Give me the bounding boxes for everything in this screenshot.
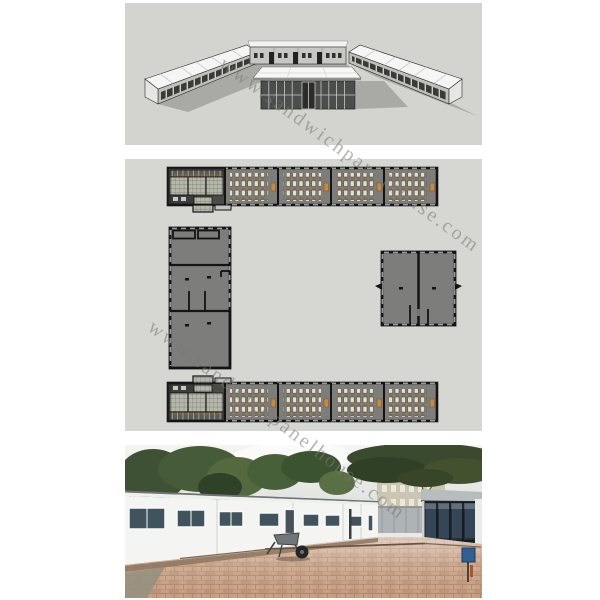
left-hall-building: [170, 228, 230, 368]
render-3d-panel: [125, 3, 482, 145]
top-classroom-strip: [168, 168, 437, 212]
bottom-classroom-strip: [168, 376, 437, 421]
floor-plan-graphic: [125, 159, 482, 431]
prefab-door: [285, 510, 295, 534]
floor-plan-panel: [125, 159, 482, 431]
gap-post: [349, 509, 352, 539]
back-classroom-row: [248, 41, 348, 64]
center-glass-hall: [253, 67, 361, 109]
product-collage: www.sandwichpanelhouse.com www.sandwichp…: [0, 0, 600, 600]
render-3d-graphic: [125, 3, 482, 145]
right-twin-room-building: [375, 252, 462, 325]
site-photo-panel: [125, 445, 482, 598]
site-photo-graphic: [125, 445, 482, 598]
